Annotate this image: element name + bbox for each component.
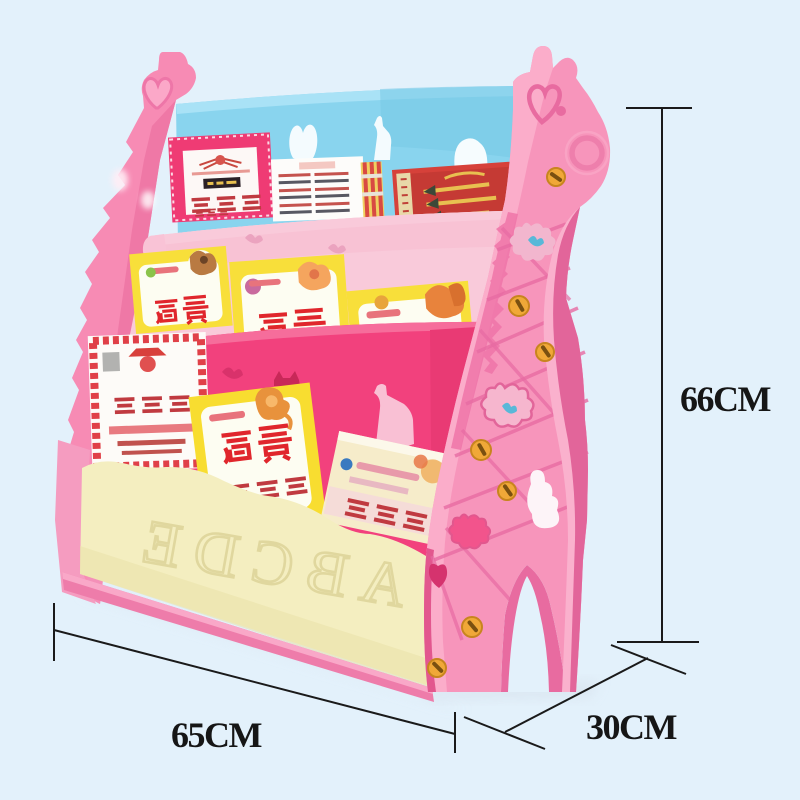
svg-text:65CM: 65CM <box>171 715 261 755</box>
svg-text:66CM: 66CM <box>680 379 770 419</box>
svg-text:30CM: 30CM <box>586 707 676 747</box>
